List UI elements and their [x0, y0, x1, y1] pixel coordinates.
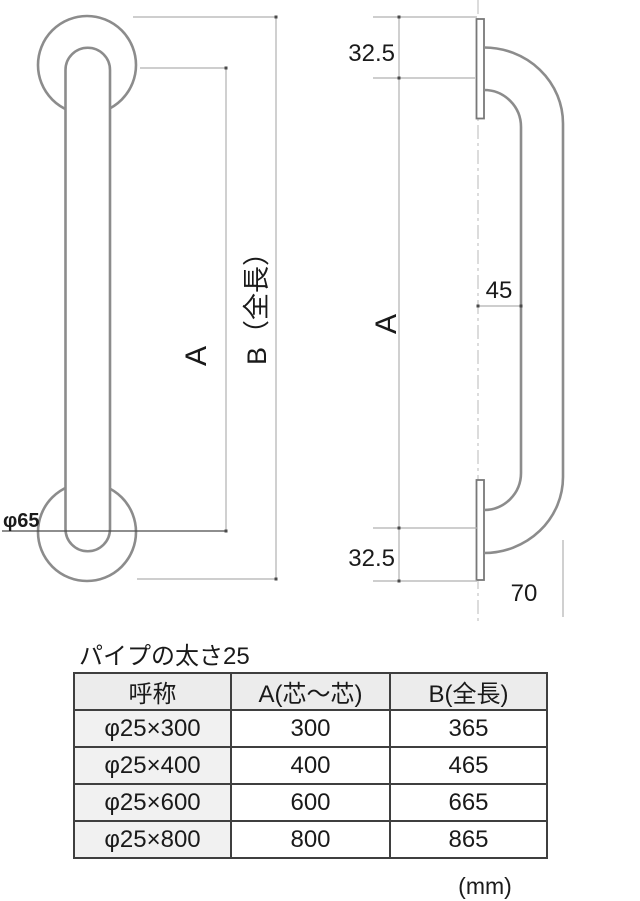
spec-name-cell: φ25×600 — [74, 784, 231, 821]
dim-tick — [225, 530, 228, 533]
dim-label-b-front: B（全長） — [242, 239, 272, 365]
pipe-front-outline — [66, 48, 111, 552]
col-header-name: 呼称 — [74, 673, 231, 710]
dim-label-top-offset: 32.5 — [348, 40, 395, 67]
spec-b-cell: 665 — [390, 784, 547, 821]
dim-tick — [275, 578, 278, 581]
grab-bar-spec-sheet: A B（全長） φ65 — [0, 0, 640, 901]
side-view: 32.5 45 A 32.5 70 — [348, 0, 563, 625]
spec-row-600: φ25×600 600 665 — [74, 784, 547, 821]
spec-name-cell: φ25×800 — [74, 821, 231, 858]
spec-row-300: φ25×300 300 365 — [74, 710, 547, 747]
dim-tick — [477, 305, 480, 308]
top-mount-plate — [477, 19, 485, 119]
dim-label-a-side: A — [370, 314, 403, 334]
spec-row-400: φ25×400 400 465 — [74, 747, 547, 784]
spec-b-cell: 465 — [390, 747, 547, 784]
dim-tick — [275, 16, 278, 19]
dim-tick — [225, 67, 228, 70]
dim-tick — [398, 16, 401, 19]
spec-table: 呼称 A(芯～芯) B(全長) φ25×300 300 365 φ25×400 … — [73, 672, 548, 859]
dimension-drawing: A B（全長） φ65 — [0, 0, 640, 632]
dim-tick — [398, 77, 401, 80]
spec-name-cell: φ25×400 — [74, 747, 231, 784]
dim-label-depth: 70 — [511, 580, 538, 607]
spec-a-cell: 800 — [231, 821, 390, 858]
unit-note: (mm) — [430, 873, 540, 900]
spec-a-cell: 400 — [231, 747, 390, 784]
flange-diameter-label: φ65 — [3, 510, 40, 532]
spec-a-cell: 600 — [231, 784, 390, 821]
spec-b-cell: 365 — [390, 710, 547, 747]
spec-row-800: φ25×800 800 865 — [74, 821, 547, 858]
dim-tick — [398, 527, 401, 530]
spec-b-cell: 865 — [390, 821, 547, 858]
spec-a-cell: 300 — [231, 710, 390, 747]
front-view: A B（全長） φ65 — [2, 16, 278, 582]
dim-label-bottom-offset: 32.5 — [348, 545, 395, 572]
col-header-b-overall-length: B(全長) — [390, 673, 547, 710]
spec-name-cell: φ25×300 — [74, 710, 231, 747]
dim-tick — [398, 580, 401, 583]
spec-table-header-row: 呼称 A(芯～芯) B(全長) — [74, 673, 547, 710]
dim-label-wall-clearance: 45 — [486, 277, 513, 304]
col-header-a-center-to-center: A(芯～芯) — [231, 673, 390, 710]
spec-table-title: パイプの太さ25 — [79, 636, 250, 671]
dim-tick — [520, 305, 523, 308]
dim-label-a-front: A — [180, 346, 213, 366]
bottom-mount-plate — [477, 480, 485, 580]
